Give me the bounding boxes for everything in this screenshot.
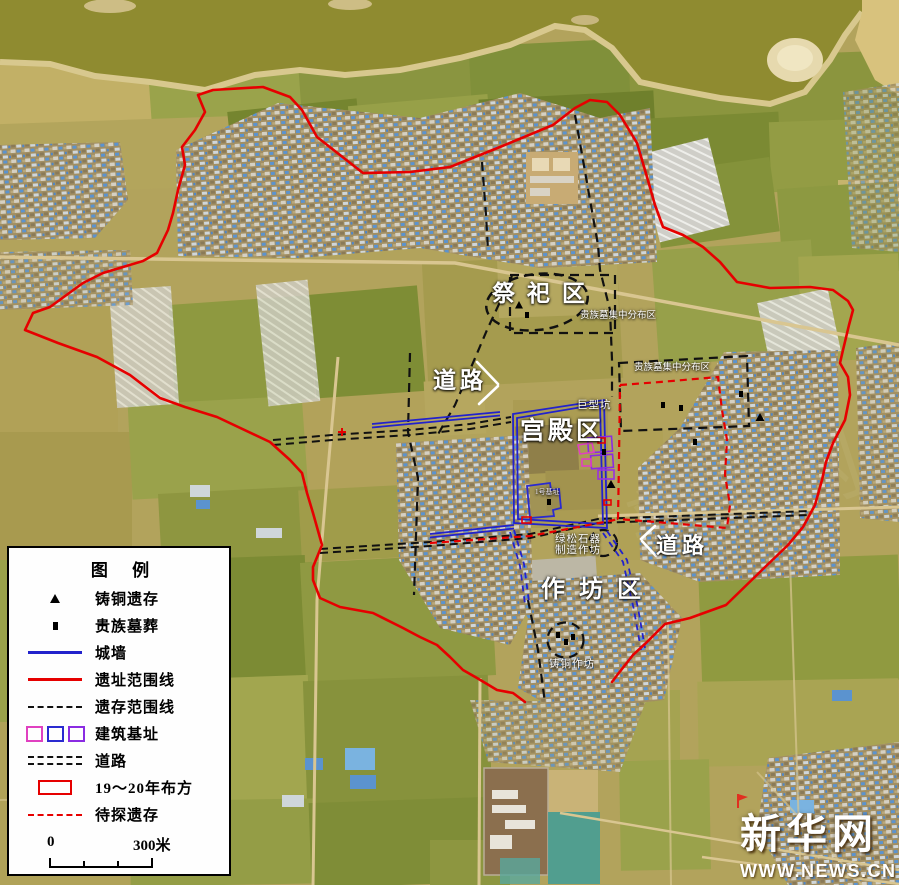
legend-item-road: 道路 [15, 747, 221, 774]
label-foundation-no1: 1号基址 [535, 489, 560, 496]
scale-bar: 0 300米 [41, 834, 201, 872]
scale-end-label: 300米 [133, 834, 171, 855]
legend-item-tombs: 贵族墓葬 [15, 612, 221, 639]
xinhua-brand-text: 新华网 [740, 811, 878, 857]
legend-item-grid: 19～20年布方 [15, 774, 221, 801]
red-dashed-icon [15, 814, 95, 816]
archaeological-site-map: 新华网 [0, 0, 899, 885]
turquoise-line1: 绿松石器 [555, 534, 601, 545]
label-noble-tombs-east: 贵族墓集中分布区 [634, 364, 710, 374]
construction-compound [484, 768, 600, 884]
label-giant-pit: 巨型坑 [577, 400, 612, 411]
legend-item-pending: 待探遗存 [15, 801, 221, 828]
legend-title: 图 例 [29, 556, 221, 581]
label-palace-area: 宫殿区 [520, 419, 604, 445]
label-bronze-workshop: 铸铜作坊 [549, 659, 595, 670]
double-dashed-icon [15, 756, 95, 765]
legend-item-bronze: 铸铜遗存 [15, 585, 221, 612]
black-dashed-icon [15, 706, 95, 708]
scale-start-label: 0 [47, 834, 55, 851]
legend-item-remains-boundary: 遗存范围线 [15, 693, 221, 720]
red-flag-icon [736, 793, 750, 809]
label-sacrificial-area: 祭祀区 [492, 282, 597, 306]
label-road-nw: 道路 [433, 369, 487, 393]
xinhua-brand: 新华网 [740, 800, 896, 860]
legend-item-wall: 城墙 [15, 639, 221, 666]
red-rect-icon [15, 780, 95, 795]
triangle-marker-icon [15, 594, 95, 603]
label-turquoise-workshop: 绿松石器制造作坊 [555, 534, 601, 556]
red-line-icon [15, 678, 95, 681]
scale-bar-line [49, 858, 153, 868]
legend-box: 图 例 铸铜遗存 贵族墓葬 城墙 遗址范围线 遗存范围线 建筑基址 道路 19～… [7, 546, 231, 876]
label-road-se: 道路 [656, 534, 708, 557]
label-noble-tombs-north: 贵族墓集中分布区 [580, 312, 656, 322]
blue-line-icon [15, 651, 95, 654]
label-workshop-area: 作坊区 [541, 578, 655, 603]
turquoise-line2: 制造作坊 [555, 545, 601, 556]
school-compound [526, 152, 578, 204]
legend-item-foundations: 建筑基址 [15, 720, 221, 747]
legend-item-site-boundary: 遗址范围线 [15, 666, 221, 693]
foundation-squares-icon [15, 726, 95, 742]
xinhua-url: WWW.NEWS.CN [740, 861, 896, 882]
xinhua-watermark: 新华网 WWW.NEWS.CN [740, 800, 896, 882]
pond [548, 812, 600, 884]
square-marker-icon [15, 622, 95, 630]
